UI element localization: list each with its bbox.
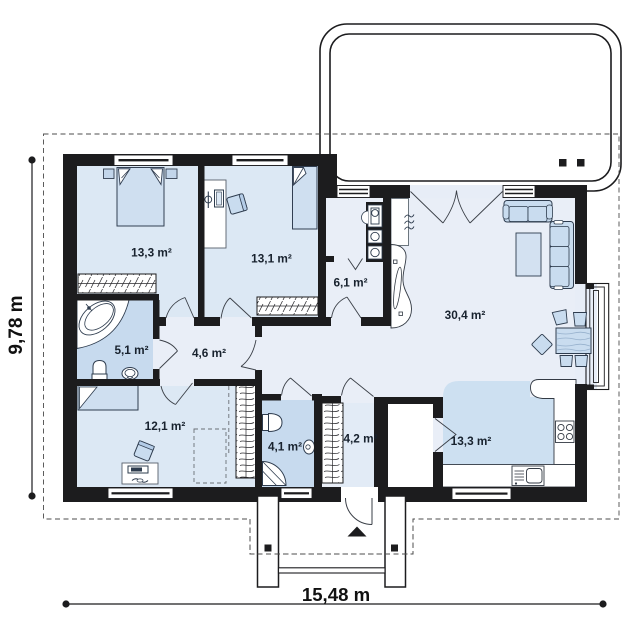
svg-text:13,3 m²: 13,3 m² [131, 246, 172, 260]
svg-text:5,1 m²: 5,1 m² [114, 343, 148, 357]
svg-text:12,1 m²: 12,1 m² [145, 419, 186, 433]
svg-text:13,3 m²: 13,3 m² [451, 434, 492, 448]
svg-text:9,78 m: 9,78 m [6, 295, 27, 354]
svg-text:15,48 m: 15,48 m [302, 584, 370, 605]
svg-text:4,6 m²: 4,6 m² [192, 346, 226, 360]
svg-text:4,2 m²: 4,2 m² [343, 432, 377, 446]
svg-text:4,1 m²: 4,1 m² [268, 440, 302, 454]
svg-text:13,1 m²: 13,1 m² [251, 252, 292, 266]
svg-text:30,4 m²: 30,4 m² [445, 308, 486, 322]
svg-text:6,1 m²: 6,1 m² [333, 276, 367, 290]
